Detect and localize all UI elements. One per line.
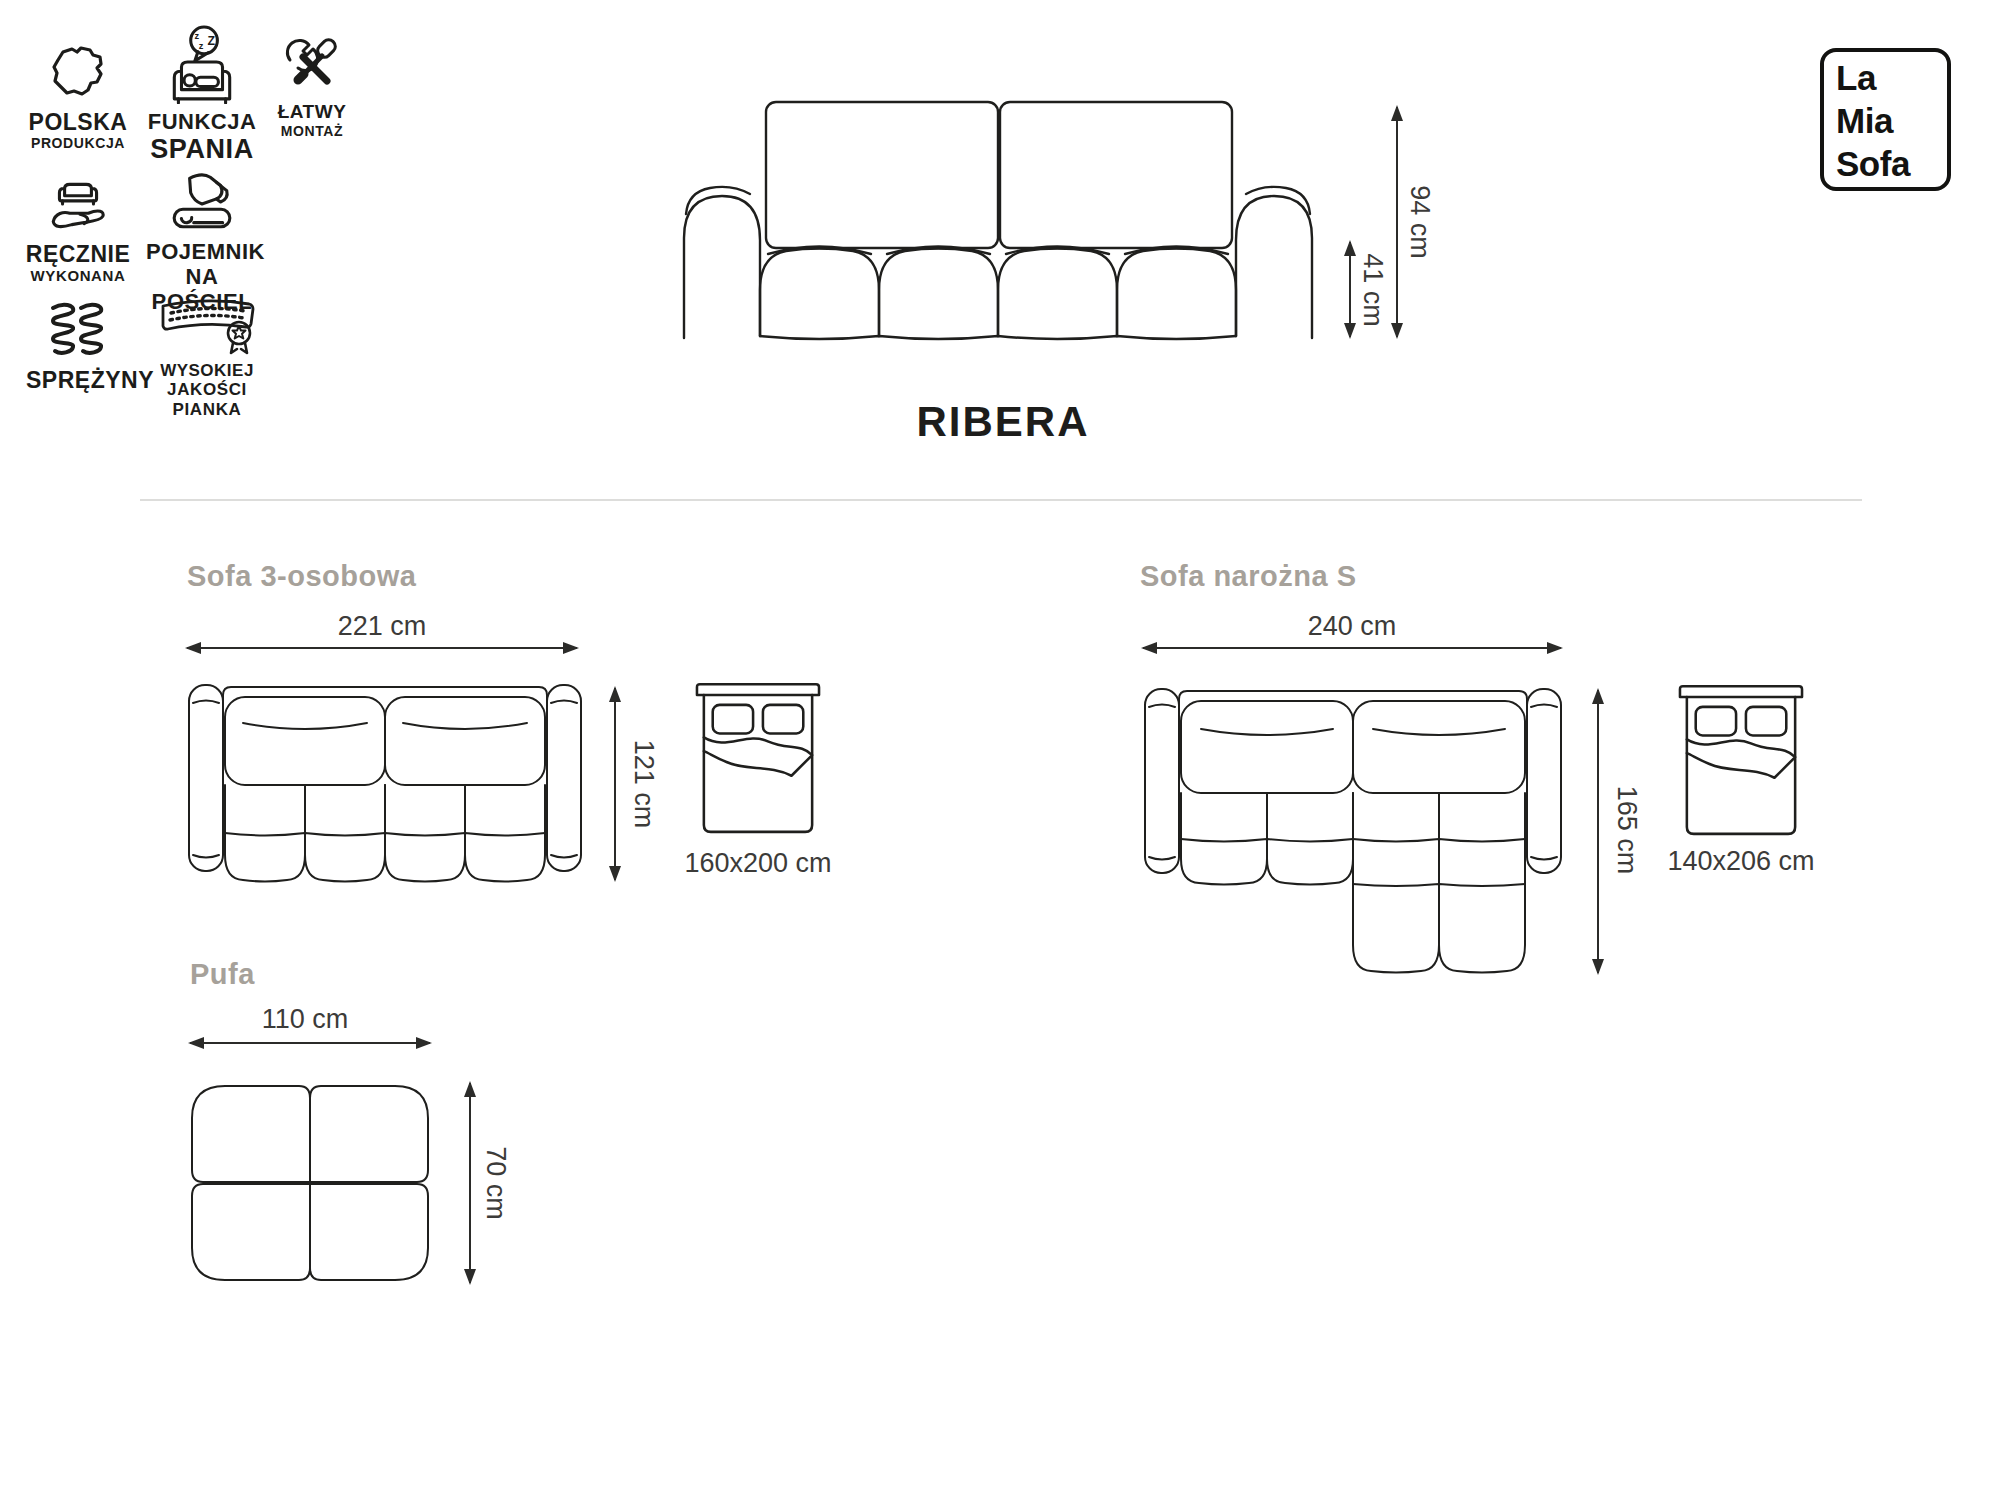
corner-bed-size-label: 140x206 cm: [1667, 846, 1814, 877]
product-title: RIBERA: [853, 398, 1153, 446]
feature-subtitle: WYKONANA: [24, 267, 132, 284]
feature-subtitle: MONTAŻ: [264, 123, 360, 139]
corner-width-label: 240 cm: [1308, 611, 1397, 642]
corner-depth-arrow: [1597, 690, 1599, 973]
feature-title: POLSKA: [26, 110, 130, 135]
feature-title: SPRĘŻYNY: [26, 368, 130, 393]
sofa3-width-arrow: [187, 647, 577, 649]
brand-logo: La Mia Sofa: [1820, 48, 1951, 191]
feature-title: RĘCZNIE: [24, 242, 132, 267]
sofa-front-view-drawing: [680, 98, 1316, 344]
corner-depth-label: 165 cm: [1611, 786, 1642, 875]
feature-subtitle: PRODUKCJA: [26, 135, 130, 151]
feature-recznie-wykonana: RĘCZNIE WYKONANA: [24, 162, 132, 284]
corner-bed-icon: [1678, 684, 1804, 840]
section-title-sofa3: Sofa 3-osobowa: [187, 560, 416, 593]
feature-sprezyny: SPRĘŻYNY: [26, 294, 130, 393]
divider-line: [140, 499, 1862, 501]
corner-sofa-top-view-drawing: [1143, 687, 1563, 977]
feature-wysokiej-jakosci-pianka: WYSOKIEJ JAKOŚCI PIANKA: [146, 298, 268, 419]
bedding-storage-icon: [146, 160, 258, 234]
sofa3-depth-label: 121 cm: [628, 740, 659, 829]
total-height-arrow: [1396, 107, 1398, 337]
pouf-width-arrow: [190, 1042, 430, 1044]
feature-title: FUNKCJA: [146, 110, 258, 134]
feature-title: ŁATWY: [264, 102, 360, 123]
sleep-function-icon: z z Z: [146, 20, 258, 104]
springs-icon: [26, 294, 130, 362]
sofa3-top-view-drawing: [187, 683, 583, 887]
sofa3-width-label: 221 cm: [338, 611, 427, 642]
zzz-glyph: z: [199, 41, 204, 51]
section-title-pouf: Pufa: [190, 958, 255, 991]
zzz-glyph: Z: [207, 34, 215, 48]
sofa3-depth-arrow: [614, 688, 616, 880]
section-title-corner: Sofa narożna S: [1140, 560, 1357, 593]
brand-line: Mia: [1836, 99, 1947, 142]
easy-assembly-tools-icon: [264, 32, 360, 96]
feature-polska-produkcja: POLSKA PRODUKCJA: [26, 36, 130, 151]
pouf-height-label: 70 cm: [480, 1146, 511, 1220]
seat-height-arrow: [1349, 242, 1351, 337]
total-height-label: 94 cm: [1404, 185, 1435, 259]
handmade-icon: [24, 162, 132, 236]
corner-width-arrow: [1143, 647, 1561, 649]
pouf-height-arrow: [469, 1083, 471, 1283]
feature-latwy-montaz: ŁATWY MONTAŻ: [264, 32, 360, 139]
brand-line: La: [1836, 56, 1947, 99]
poland-map-icon: [26, 36, 130, 104]
feature-pojemnik-na-posciel: POJEMNIK NA POŚCIEL: [146, 160, 258, 314]
seat-height-label: 41 cm: [1357, 253, 1388, 327]
feature-title: WYSOKIEJ: [146, 362, 268, 380]
sofa3-bed-size-label: 160x200 cm: [684, 848, 831, 879]
high-quality-foam-icon: [146, 298, 268, 356]
feature-subtitle: JAKOŚCI PIANKA: [146, 380, 268, 419]
feature-funkcja-spania: z z Z FUNKCJA SPANIA: [146, 20, 258, 165]
pouf-top-view-drawing: [187, 1082, 433, 1284]
pouf-width-label: 110 cm: [262, 1004, 349, 1035]
brand-line: Sofa: [1836, 142, 1947, 185]
sofa3-bed-icon: [695, 682, 821, 838]
spec-sheet: POLSKA PRODUKCJA z z Z: [0, 0, 2000, 1500]
feature-title: POJEMNIK: [146, 240, 258, 264]
